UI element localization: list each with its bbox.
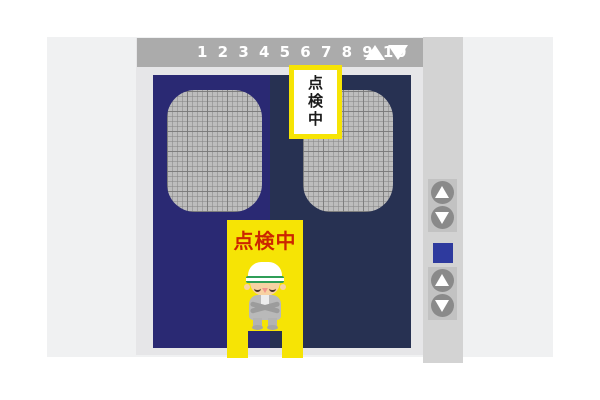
worker-helmet-band: [246, 276, 284, 283]
worker-nose: [262, 288, 268, 293]
up-button-icon: [431, 181, 454, 204]
down-triangle-icon: [388, 45, 408, 60]
upper-button-plate: [428, 179, 457, 232]
worker-helmet: [248, 262, 282, 277]
up-triangle-icon: [365, 45, 385, 60]
inspection-door-sign: 点検中: [289, 65, 342, 139]
left-door-window: [167, 90, 262, 212]
down-triangle-icon: [435, 300, 449, 312]
up-triangle-icon: [435, 186, 449, 198]
inspection-stand-sign-text: 点検中: [227, 225, 303, 254]
worker-ear: [280, 284, 286, 290]
down-button-icon: [431, 206, 454, 229]
hall-lantern: [433, 243, 453, 263]
down-button-icon: [431, 294, 454, 317]
worker-ear: [244, 284, 250, 290]
stand-sign-right-leg: [282, 331, 303, 358]
worker-shoe: [252, 325, 263, 330]
hall-call-panel: [423, 37, 463, 363]
lower-button-plate: [428, 267, 457, 320]
up-button-icon: [431, 269, 454, 292]
up-triangle-icon: [435, 274, 449, 286]
floor-indicator-bar: 1 2 3 4 5 6 7 8 9 10: [137, 38, 423, 67]
down-triangle-icon: [435, 212, 449, 224]
bowing-worker-mascot: [245, 261, 285, 331]
stand-sign-left-leg: [227, 331, 248, 358]
elevator-inspection-illustration: 1 2 3 4 5 6 7 8 9 10: [0, 0, 600, 400]
inspection-door-sign-text: 点検中: [305, 75, 326, 129]
worker-shoe: [267, 325, 278, 330]
